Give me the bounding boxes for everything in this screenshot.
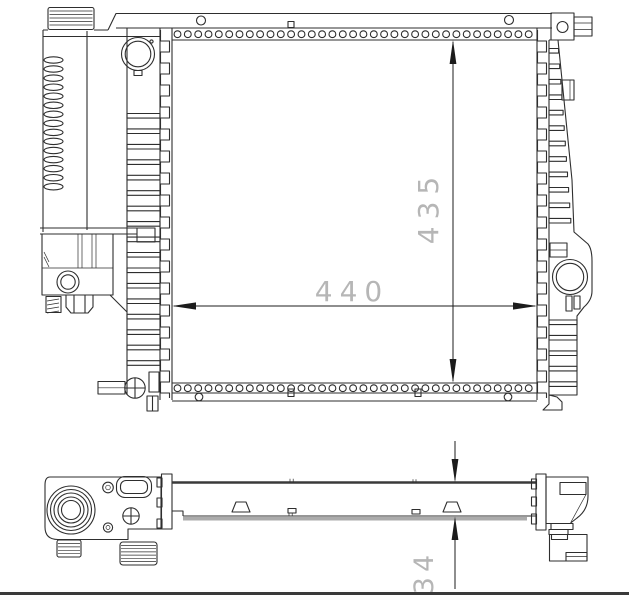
seam-clamp (137, 228, 155, 242)
arrow-left-icon (172, 302, 196, 309)
outlet-port (550, 243, 588, 311)
right-tank-outline (549, 40, 592, 395)
core-bottom-face (172, 511, 537, 516)
tank-lower-taper (110, 295, 127, 312)
lower-block (550, 535, 588, 562)
filler-cap-top (47, 486, 95, 534)
endcap-step1 (551, 524, 573, 530)
hose-connector (46, 295, 93, 313)
bottom-plate-hole-right (504, 393, 512, 401)
endcap-body-right (546, 477, 588, 524)
front-view: 440 435 (40, 8, 592, 412)
clip-trapezoid-left (232, 502, 250, 512)
endcap-step2 (549, 530, 568, 535)
arrow-right-icon (513, 302, 537, 309)
endcap-flange-right (536, 474, 546, 530)
radiator-core (108, 14, 552, 402)
bottom-plate-hole-left (195, 393, 203, 401)
dimension-height: 435 (412, 40, 456, 383)
sensor-hole-top (103, 482, 114, 493)
profile-view: 34 (45, 441, 588, 594)
filler-neck-threads (50, 11, 93, 25)
endcap-slot (560, 483, 586, 495)
mid-flange (40, 228, 137, 234)
lower-block-notch (552, 535, 568, 540)
tank-ribs (44, 57, 63, 190)
sensor-hole-bottom (103, 523, 112, 532)
endcap-corner-line (571, 495, 586, 523)
mount-port-inner (121, 481, 148, 494)
stub-threads (47, 299, 59, 313)
drain-plug (98, 372, 159, 411)
top-plate-hole-left (197, 16, 206, 25)
clip-small-left (288, 509, 296, 514)
foot-bracket-right (543, 395, 562, 410)
dim-width-label: 440 (315, 275, 389, 308)
top-header-tube-holes (174, 31, 532, 38)
profile-core (172, 479, 537, 521)
expansion-chamber (42, 234, 113, 295)
dimension-width: 440 (172, 275, 537, 310)
tube-tick-marks (289, 479, 416, 516)
sensor-hole-top-inner (106, 485, 111, 490)
right-tank (538, 13, 593, 410)
clip-trapezoid-right (443, 502, 461, 512)
endcap-flange (162, 474, 173, 529)
arrow-down-icon (452, 459, 459, 483)
mount-bracket-top-right (551, 13, 592, 40)
arrow-down-icon (450, 359, 457, 383)
stub-threads-large (121, 546, 156, 562)
radiator-drawing-svg: 440 435 (0, 0, 629, 600)
arrow-up-icon (450, 40, 457, 64)
top-plate-hole-right (505, 16, 514, 25)
crimp-seam-right (538, 30, 547, 398)
profile-left-endcap (45, 474, 172, 565)
bottom-header-tube-holes (174, 385, 532, 392)
mount-port (117, 477, 152, 498)
clip-small-right (412, 510, 420, 515)
left-tank (40, 8, 170, 412)
core-outline (172, 28, 537, 401)
core-bottom-shade (183, 517, 527, 521)
profile-right-endcap (532, 474, 589, 561)
sensor-hole-bottom-inner (106, 526, 110, 530)
threaded-stub-small (57, 540, 81, 557)
side-channel-ribs-right (549, 49, 577, 387)
crimp-seam-left (161, 30, 170, 398)
left-tank-outline (43, 28, 160, 400)
screw-head (123, 508, 139, 524)
stub-threads-small (58, 544, 80, 558)
radiator-technical-drawing: 440 435 (0, 0, 629, 600)
top-plate-tab (288, 22, 294, 28)
dim-depth-label: 34 (409, 550, 440, 594)
dim-height-label: 435 (412, 170, 445, 244)
